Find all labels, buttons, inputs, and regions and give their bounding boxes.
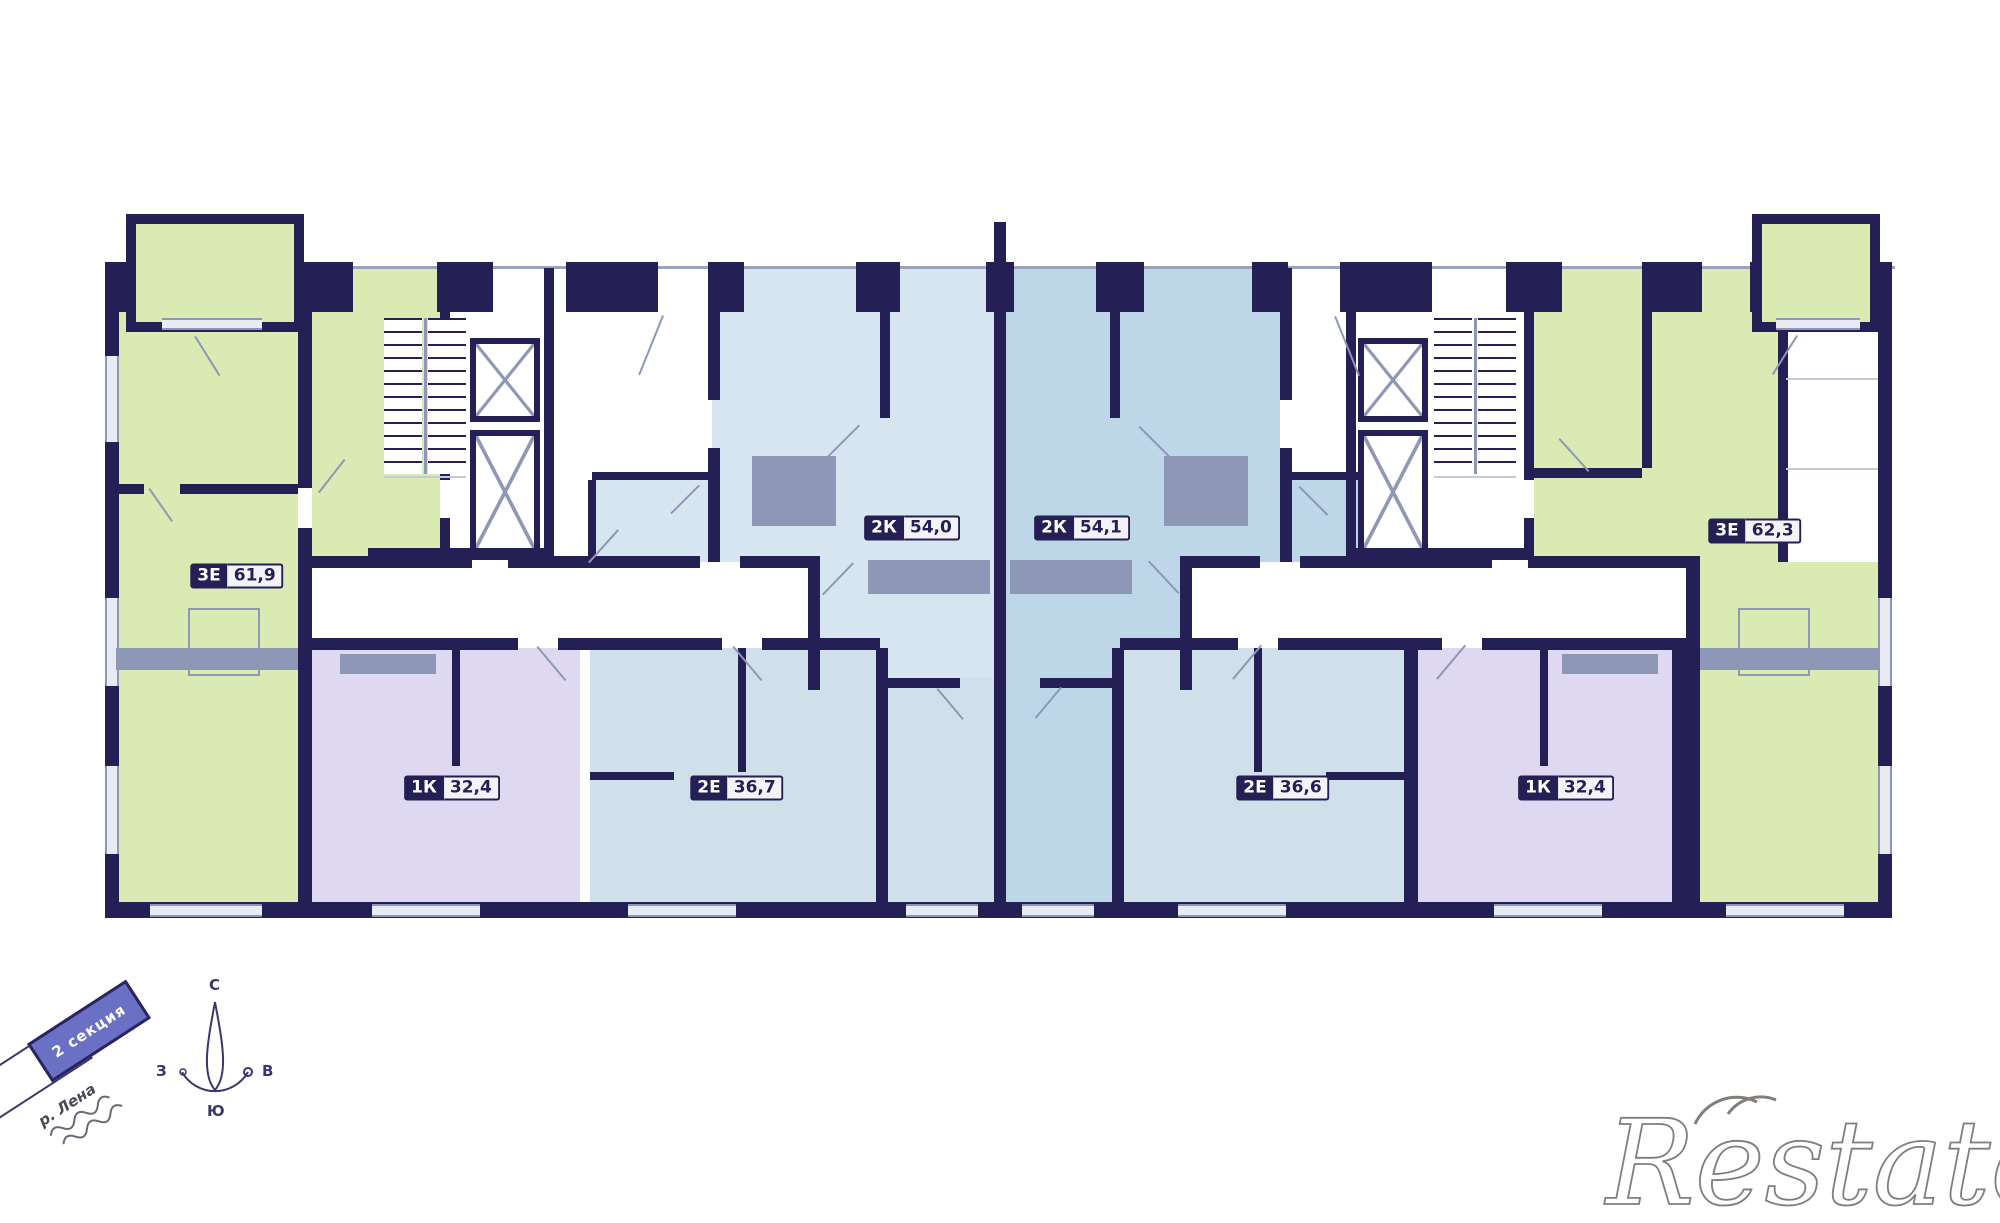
staircase-landing-line [1434, 476, 1516, 478]
watermark-logo: Restate [1600, 1072, 2000, 1223]
watermark-text: Restate [1604, 1094, 2000, 1222]
wall [1112, 648, 1124, 910]
wall [1686, 556, 1700, 648]
apartment-type: 2К [1034, 516, 1074, 541]
wall [888, 678, 960, 688]
window [105, 766, 119, 854]
window [1878, 598, 1892, 686]
room-left-3e [112, 268, 298, 918]
elevator-shaft [470, 338, 540, 422]
apartment-type: 3Е [190, 564, 227, 589]
section-banner-label: 2 секция [49, 1001, 129, 1062]
wardrobe [1738, 608, 1810, 676]
wall [298, 528, 312, 918]
wall [1120, 638, 1238, 650]
wall-pier [856, 262, 900, 312]
elevator-shaft [1358, 338, 1428, 422]
wall [1482, 638, 1686, 650]
window [1178, 904, 1286, 917]
window [105, 598, 119, 686]
wall [312, 638, 518, 650]
wall [808, 556, 820, 690]
wall [1184, 556, 1260, 568]
wall [452, 648, 460, 766]
window [1878, 766, 1892, 854]
wall [1540, 648, 1548, 766]
apartment-type: 3Е [1708, 519, 1745, 544]
window [1726, 904, 1844, 917]
compass-north-label: С [209, 976, 220, 994]
compass-east-label: В [262, 1062, 273, 1080]
wall [1040, 678, 1112, 688]
wall [1528, 556, 1686, 568]
wall [544, 268, 554, 560]
staircase-flight [384, 318, 422, 474]
floor-plan-page: 3Е61,9 1К32,4 2Е36,7 2К54,0 2К54,1 2Е36,… [0, 0, 2000, 1223]
apartment-type: 1К [1518, 776, 1558, 801]
wall [508, 556, 700, 568]
wall-pier [566, 262, 658, 312]
section-banner: 2 секция [27, 980, 151, 1083]
elevator-shaft [1358, 430, 1428, 554]
wall [1524, 518, 1534, 560]
wardrobe [1562, 654, 1658, 674]
balcony-left [126, 214, 304, 332]
wall [1672, 648, 1700, 910]
staircase-flight [1478, 318, 1516, 474]
wardrobe [188, 608, 260, 676]
apartment-badge-left-2e: 2Е36,7 [690, 776, 783, 801]
wall [302, 556, 472, 568]
wall [1642, 268, 1652, 468]
apartment-type: 1К [404, 776, 444, 801]
wall-pier [1506, 262, 1562, 312]
compass-rose: С З В Ю [150, 980, 290, 1130]
wardrobe [340, 654, 436, 674]
apartment-area: 54,1 [1074, 516, 1130, 541]
wall [1280, 268, 1292, 400]
wall [112, 484, 144, 494]
apartment-area: 36,6 [1274, 776, 1330, 801]
wall [762, 638, 880, 650]
staircase-flight [1434, 318, 1472, 474]
compass-south-label: Ю [207, 1102, 225, 1120]
apartment-badge-right-1k: 1К32,4 [1518, 776, 1614, 801]
apartment-badge-right-3e: 3Е62,3 [1708, 519, 1801, 544]
wall [1110, 268, 1120, 418]
wall [588, 480, 596, 562]
apartment-area: 62,3 [1746, 519, 1802, 544]
wall [708, 268, 720, 400]
balcony-window [1776, 318, 1860, 330]
window [1022, 904, 1094, 917]
wall [558, 638, 722, 650]
wall [180, 484, 298, 494]
apartment-badge-right-2e: 2Е36,6 [1236, 776, 1329, 801]
apartment-type: 2К [864, 516, 904, 541]
staircase-flight [428, 318, 466, 474]
kitchen-center-left-2k [888, 678, 994, 918]
elevator-shaft [470, 430, 540, 554]
window [150, 904, 262, 917]
window [628, 904, 736, 917]
wall [880, 268, 890, 418]
wall-pier [1096, 262, 1144, 312]
wall-center [994, 222, 1006, 918]
apartment-badge-center-right-2k: 2К54,1 [1034, 516, 1130, 541]
window [1494, 904, 1602, 917]
apartment-badge-left-3e: 3Е61,9 [190, 564, 283, 589]
closet [1010, 560, 1132, 594]
balcony-window [162, 318, 262, 330]
door-swing [638, 315, 664, 375]
apartment-area: 36,7 [728, 776, 784, 801]
wall [1280, 448, 1292, 562]
apartment-type: 2Е [690, 776, 727, 801]
wall [708, 448, 720, 562]
staircase-divider [424, 318, 427, 474]
wall [738, 648, 746, 772]
bed [752, 456, 836, 526]
wall [1254, 648, 1262, 772]
apartment-badge-center-left-2k: 2К54,0 [864, 516, 960, 541]
window [372, 904, 480, 917]
wall [876, 648, 888, 910]
staircase-landing-line [384, 476, 466, 478]
wall [1524, 268, 1534, 480]
kitchen-center-right-2k [1006, 678, 1112, 918]
window [906, 904, 978, 917]
closet [868, 560, 990, 594]
apartment-area: 61,9 [228, 564, 284, 589]
apartment-badge-left-1k: 1К32,4 [404, 776, 500, 801]
wall [590, 772, 674, 780]
wall [1346, 268, 1356, 560]
apartment-area: 32,4 [444, 776, 500, 801]
apartment-type: 2Е [1236, 776, 1273, 801]
compass-west-label: З [156, 1062, 167, 1080]
apartment-area: 54,0 [904, 516, 960, 541]
watermark-logo-icon: Restate [1600, 1072, 2000, 1222]
apartment-area: 32,4 [1558, 776, 1614, 801]
balcony-strip-line [1786, 378, 1878, 380]
staircase-divider [1474, 318, 1477, 474]
wall [1326, 772, 1410, 780]
balcony-strip-line [1786, 468, 1878, 470]
bed [1164, 456, 1248, 526]
wall [592, 472, 720, 480]
balcony-right [1752, 214, 1880, 332]
wall [740, 556, 816, 568]
window [105, 356, 119, 442]
wall [1180, 556, 1192, 690]
